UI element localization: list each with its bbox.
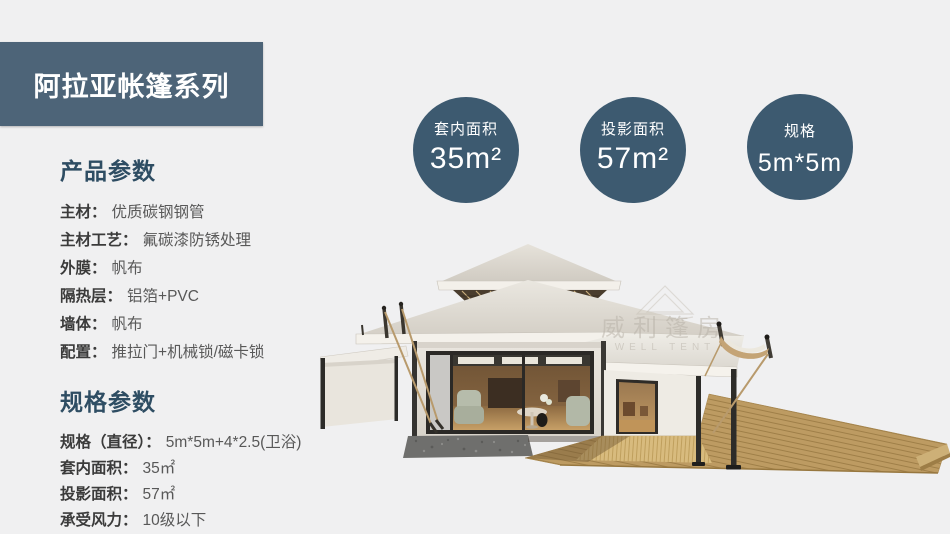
badge-value: 57m² [580, 142, 686, 176]
watermark-cn: 威利篷房 [601, 315, 729, 342]
badge-size: 规格 5m*5m [747, 94, 853, 200]
product-sheet: 阿拉亚帐篷系列 产品参数 主材：优质碳钢钢管 主材工艺：氟碳漆防锈处理 外膜：帆… [0, 0, 950, 534]
tent-product-image: 威利篷房 WELL TENT [320, 230, 950, 530]
param-value: 10级以下 [143, 512, 207, 529]
tent-side-fence [320, 346, 408, 429]
tent-main-wall [412, 341, 606, 438]
param-label: 外膜： [60, 260, 107, 277]
param-value: 氟碳漆防锈处理 [143, 232, 252, 249]
badge-label: 规格 [747, 120, 853, 141]
param-label: 主材工艺： [60, 232, 138, 249]
param-value: 57㎡ [143, 486, 176, 503]
param-value: 推拉门+机械锁/磁卡锁 [112, 344, 265, 361]
badge-inner-area: 套内面积 35m² [413, 97, 519, 203]
param-value: 优质碳钢钢管 [112, 204, 205, 221]
series-title-banner: 阿拉亚帐篷系列 [0, 42, 263, 126]
param-value: 帆布 [112, 260, 143, 277]
watermark-en: WELL TENT [615, 342, 716, 353]
param-label: 隔热层： [60, 288, 122, 305]
param-label: 投影面积： [60, 486, 138, 503]
param-value: 5m*5m+4*2.5(卫浴) [166, 434, 302, 451]
param-label: 套内面积： [60, 460, 138, 477]
series-title: 阿拉亚帐篷系列 [34, 65, 230, 104]
badge-label: 投影面积 [580, 118, 686, 139]
badge-value: 35m² [413, 142, 519, 176]
tent-porch-wall [604, 370, 698, 436]
param-value: 铝箔+PVC [127, 288, 199, 305]
badge-value: 5m*5m [747, 149, 853, 178]
brand-watermark: 威利篷房 WELL TENT [601, 286, 729, 353]
param-value: 帆布 [112, 316, 143, 333]
param-label: 配置： [60, 344, 107, 361]
param-row: 主材：优质碳钢钢管 [60, 199, 380, 227]
badge-label: 套内面积 [413, 118, 519, 139]
badge-projection-area: 投影面积 57m² [580, 97, 686, 203]
product-params-heading: 产品参数 [60, 152, 380, 186]
param-label: 规格（直径）： [60, 434, 161, 451]
param-label: 主材： [60, 204, 107, 221]
param-label: 承受风力： [60, 512, 138, 529]
param-value: 35㎡ [143, 460, 176, 477]
param-label: 墙体： [60, 316, 107, 333]
